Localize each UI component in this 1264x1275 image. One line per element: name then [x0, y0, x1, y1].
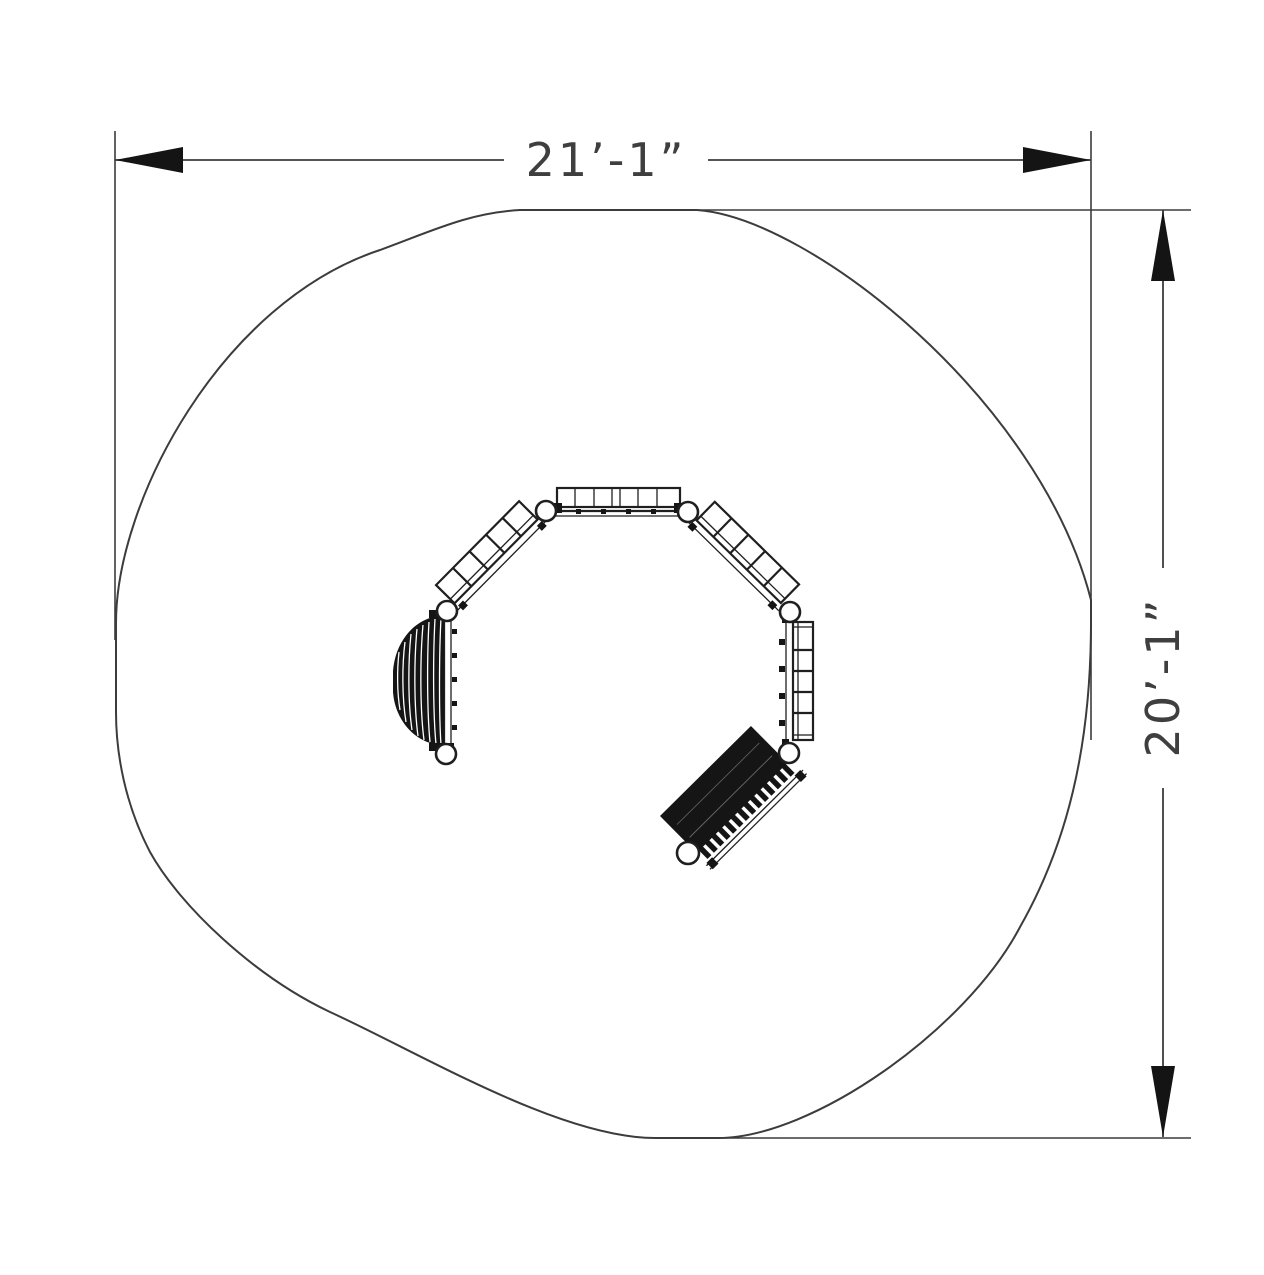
arrowhead-right-icon — [1023, 147, 1091, 173]
dimension-height-label: 20’-1” — [1136, 597, 1190, 758]
deck-fastener — [601, 509, 606, 514]
rail-fastener — [452, 725, 457, 730]
support-post — [536, 501, 556, 521]
support-post — [678, 502, 698, 522]
rail-fastener — [452, 701, 457, 706]
rail-fastener — [779, 639, 785, 645]
rail-fastener — [452, 629, 457, 634]
plan-drawing-canvas: 21’-1” 20’-1” — [0, 0, 1264, 1275]
support-post — [436, 744, 456, 764]
safety-surface-outline — [116, 210, 1091, 1138]
support-post — [780, 602, 800, 622]
rail-fastener — [452, 677, 457, 682]
arrowhead-left-icon — [115, 147, 183, 173]
deck-fastener — [626, 509, 631, 514]
rail-fastener — [779, 720, 785, 726]
support-post — [677, 842, 699, 864]
rail-fastener — [779, 693, 785, 699]
rail-fastener — [779, 666, 785, 672]
drawing-viewport: 21’-1” 20’-1” — [0, 0, 1264, 1275]
arrowhead-down-icon — [1151, 1066, 1175, 1137]
dimension-width-label: 21’-1” — [526, 133, 687, 187]
support-post — [779, 743, 799, 763]
arrowhead-up-icon — [1151, 210, 1175, 281]
deck-fastener — [576, 509, 581, 514]
deck-fastener — [651, 509, 656, 514]
climber-deck-rail — [445, 614, 452, 747]
support-post — [437, 601, 457, 621]
rail-fastener — [452, 653, 457, 658]
